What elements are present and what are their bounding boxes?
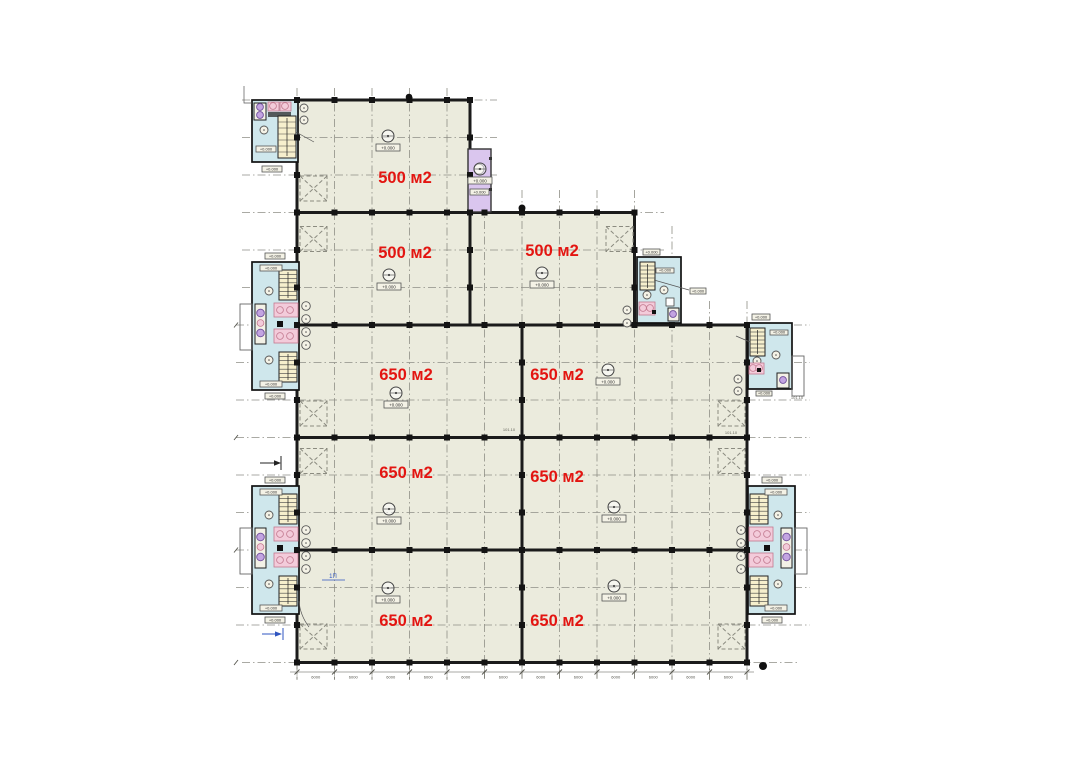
tiny-label: +0.000	[265, 490, 278, 495]
area-label: 650 м2	[379, 464, 433, 482]
level-mark-value: +0.000	[607, 517, 621, 522]
tiny-label: +0.000	[755, 315, 768, 320]
entrance-porch	[240, 528, 252, 574]
level-mark-value: +0.000	[607, 596, 621, 601]
drain-symbol	[519, 205, 526, 212]
entrance-porch	[795, 528, 807, 574]
tiny-label: +0.000	[265, 382, 278, 387]
level-mark-value: +0.000	[381, 146, 395, 151]
area-label: 650 м2	[379, 366, 433, 384]
tiny-label: +0.000	[269, 394, 282, 399]
tiny-label: +0.000	[766, 618, 779, 623]
tiny-label: +0.000	[659, 268, 672, 273]
tiny-label: +0.000	[770, 606, 783, 611]
tiny-label: +0.000	[773, 330, 786, 335]
dimension-value: 6000	[461, 675, 471, 680]
dimension-value: 6000	[611, 675, 621, 680]
area-label: 650 м2	[530, 468, 584, 486]
tiny-label: +0.000	[269, 478, 282, 483]
dimension-value: 6000	[649, 675, 659, 680]
dimension-value: 6000	[349, 675, 359, 680]
level-mark-value: +0.000	[535, 283, 549, 288]
tiny-label: +0.000	[265, 606, 278, 611]
area-label: 500 м2	[378, 244, 432, 262]
room-tag: 101.10	[503, 427, 516, 432]
tiny-label: +0.000	[473, 190, 486, 195]
dimension-value: 6000	[424, 675, 434, 680]
level-mark-value: +0.000	[601, 380, 615, 385]
section-mark-label: 1П	[329, 574, 337, 580]
dimension-value: 6000	[311, 675, 321, 680]
area-label: 650 м2	[530, 612, 584, 630]
dimension-value: 6000	[536, 675, 546, 680]
tiny-label: +0.000	[770, 490, 783, 495]
tiny-label: +0.000	[766, 478, 779, 483]
tiny-label: +0.000	[758, 391, 771, 396]
plan-svg: +0.000+0.000+0.000+0.000+0.000+0.000+0.0…	[0, 0, 1072, 768]
area-label: 650 м2	[379, 612, 433, 630]
dimension-value: 6000	[724, 675, 734, 680]
dimension-value: 6000	[686, 675, 696, 680]
tiny-label: +0.000	[645, 250, 658, 255]
room-tag: 101.10	[791, 395, 804, 400]
tiny-label: +0.000	[266, 167, 279, 172]
dimension-value: 6000	[386, 675, 396, 680]
entrance-porch	[792, 356, 804, 396]
tiny-label: +0.000	[269, 618, 282, 623]
drain-symbol	[406, 94, 413, 101]
floor-plan-page: +0.000+0.000+0.000+0.000+0.000+0.000+0.0…	[0, 0, 1072, 768]
drain-symbol	[759, 662, 767, 670]
level-mark-value: +0.000	[381, 598, 395, 603]
tiny-label: +0.000	[269, 254, 282, 259]
room-tag: 101.10	[725, 430, 738, 435]
tiny-label: +0.000	[265, 266, 278, 271]
level-mark-value: +0.000	[382, 285, 396, 290]
area-label: 500 м2	[525, 242, 579, 260]
level-mark-value: +0.000	[389, 403, 403, 408]
tiny-label: +0.000	[260, 147, 273, 152]
area-label: 500 м2	[378, 169, 432, 187]
dimension-value: 6000	[574, 675, 584, 680]
entrance-porch	[240, 304, 252, 350]
tiny-label: +0.000	[692, 289, 705, 294]
dimension-value: 6000	[499, 675, 509, 680]
level-mark-value: +0.000	[473, 179, 487, 184]
area-label: 650 м2	[530, 366, 584, 384]
level-mark-value: +0.000	[382, 519, 396, 524]
